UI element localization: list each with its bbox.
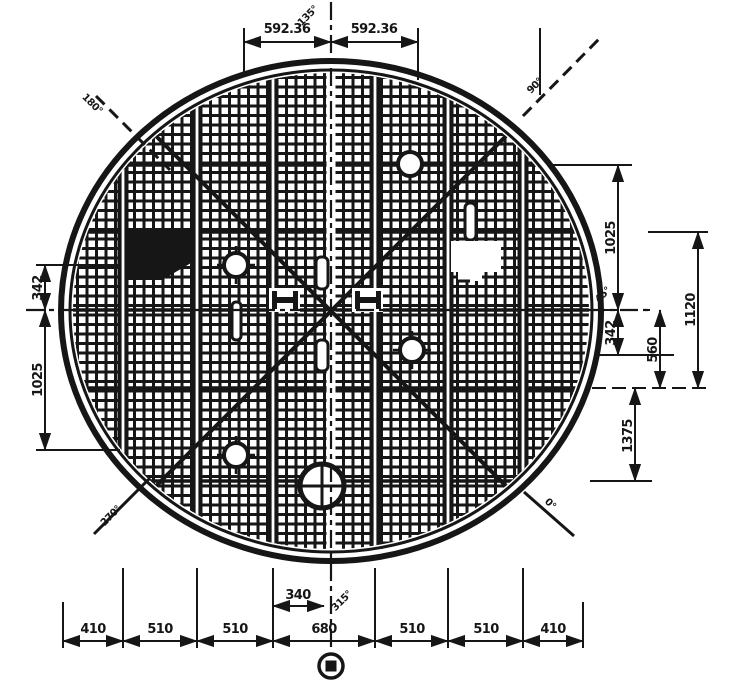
dim-label-right-1025: 1025: [604, 221, 619, 255]
dim-label-right-560: 560: [646, 337, 661, 363]
dimension-bottom: 410 510 510 680 510 510 410 340 315°: [63, 568, 583, 648]
dim-label-bottom-510a: 510: [147, 622, 173, 637]
dim-label-right-342: 342: [604, 320, 619, 345]
splice-marker: [352, 288, 383, 312]
dim-label-left-342: 342: [31, 275, 46, 300]
dim-label-bottom-680: 680: [311, 622, 337, 637]
dim-label-bottom-510c: 510: [399, 622, 425, 637]
datum-target-symbol: [319, 654, 343, 678]
ray-90: [523, 38, 600, 116]
slot: [465, 203, 476, 240]
slot: [316, 257, 328, 289]
angle-label-45: 45°: [593, 285, 613, 305]
dim-label-bottom-510d: 510: [473, 622, 499, 637]
dim-label-bottom-510b: 510: [222, 622, 248, 637]
drawing-canvas: 592.36 592.36 135° 180° 90° 270° 0° 342 …: [0, 0, 743, 696]
center-bottom-hole: [298, 462, 346, 510]
dim-label-bottom-410b: 410: [540, 622, 566, 637]
splice-marker: [269, 288, 300, 312]
dim-label-right-1375: 1375: [621, 419, 636, 453]
dim-label-right-1120: 1120: [684, 293, 699, 327]
angle-label-315: 315°: [330, 589, 355, 614]
slot: [316, 340, 328, 371]
dim-label-340: 340: [285, 588, 311, 603]
dim-label-bottom-410a: 410: [80, 622, 106, 637]
dim-label-top-right: 592.36: [351, 22, 398, 37]
slot: [232, 302, 241, 340]
dim-label-left-1025: 1025: [31, 363, 46, 397]
angle-label-90: 90°: [525, 76, 545, 96]
angle-label-180: 180°: [79, 92, 104, 117]
